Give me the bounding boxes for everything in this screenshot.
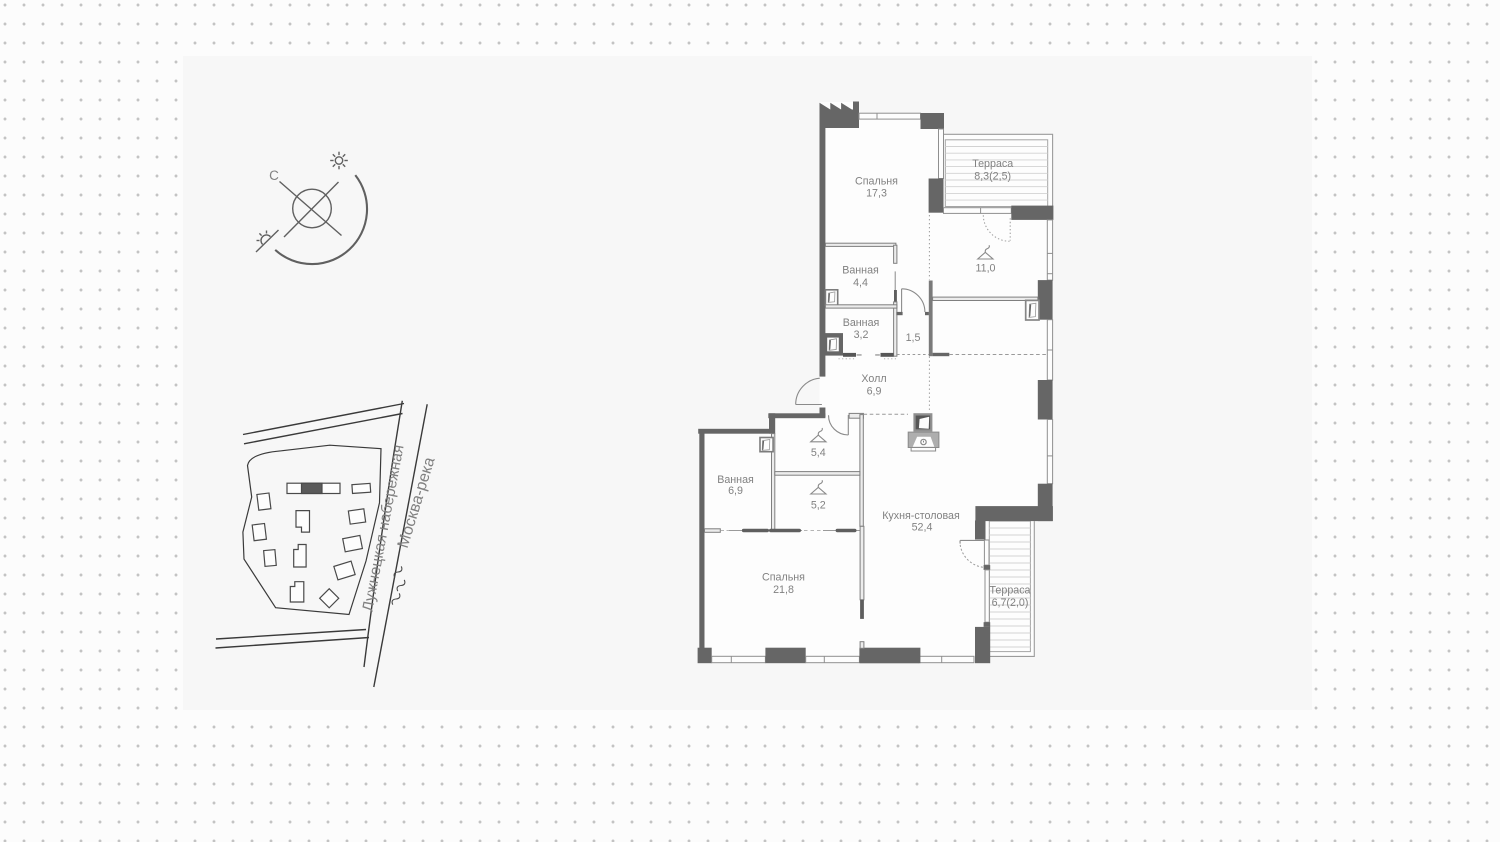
svg-text:6,7(2,0): 6,7(2,0) [992,597,1029,609]
svg-text:21,8: 21,8 [773,584,794,596]
svg-text:Холл: Холл [861,373,886,385]
svg-text:Кухня-столовая: Кухня-столовая [882,510,960,522]
svg-text:5,2: 5,2 [811,500,826,512]
svg-text:3,2: 3,2 [854,329,869,341]
svg-text:8,3(2,5): 8,3(2,5) [974,171,1011,183]
svg-text:Терраса: Терраса [972,158,1013,170]
svg-text:Спальня: Спальня [762,572,805,584]
svg-text:17,3: 17,3 [866,188,887,200]
svg-text:6,9: 6,9 [728,485,743,497]
svg-text:5,4: 5,4 [811,447,826,459]
svg-text:С: С [269,168,279,183]
svg-text:Терраса: Терраса [990,585,1031,597]
svg-text:6,9: 6,9 [867,386,882,398]
svg-text:11,0: 11,0 [975,263,995,275]
svg-text:Спальня: Спальня [855,175,898,187]
svg-text:Ванная: Ванная [717,474,754,486]
svg-text:Ванная: Ванная [843,317,880,329]
svg-text:52,4: 52,4 [912,521,933,533]
svg-text:4,4: 4,4 [853,277,868,289]
svg-text:1,5: 1,5 [906,332,921,344]
svg-text:Ванная: Ванная [842,265,879,277]
